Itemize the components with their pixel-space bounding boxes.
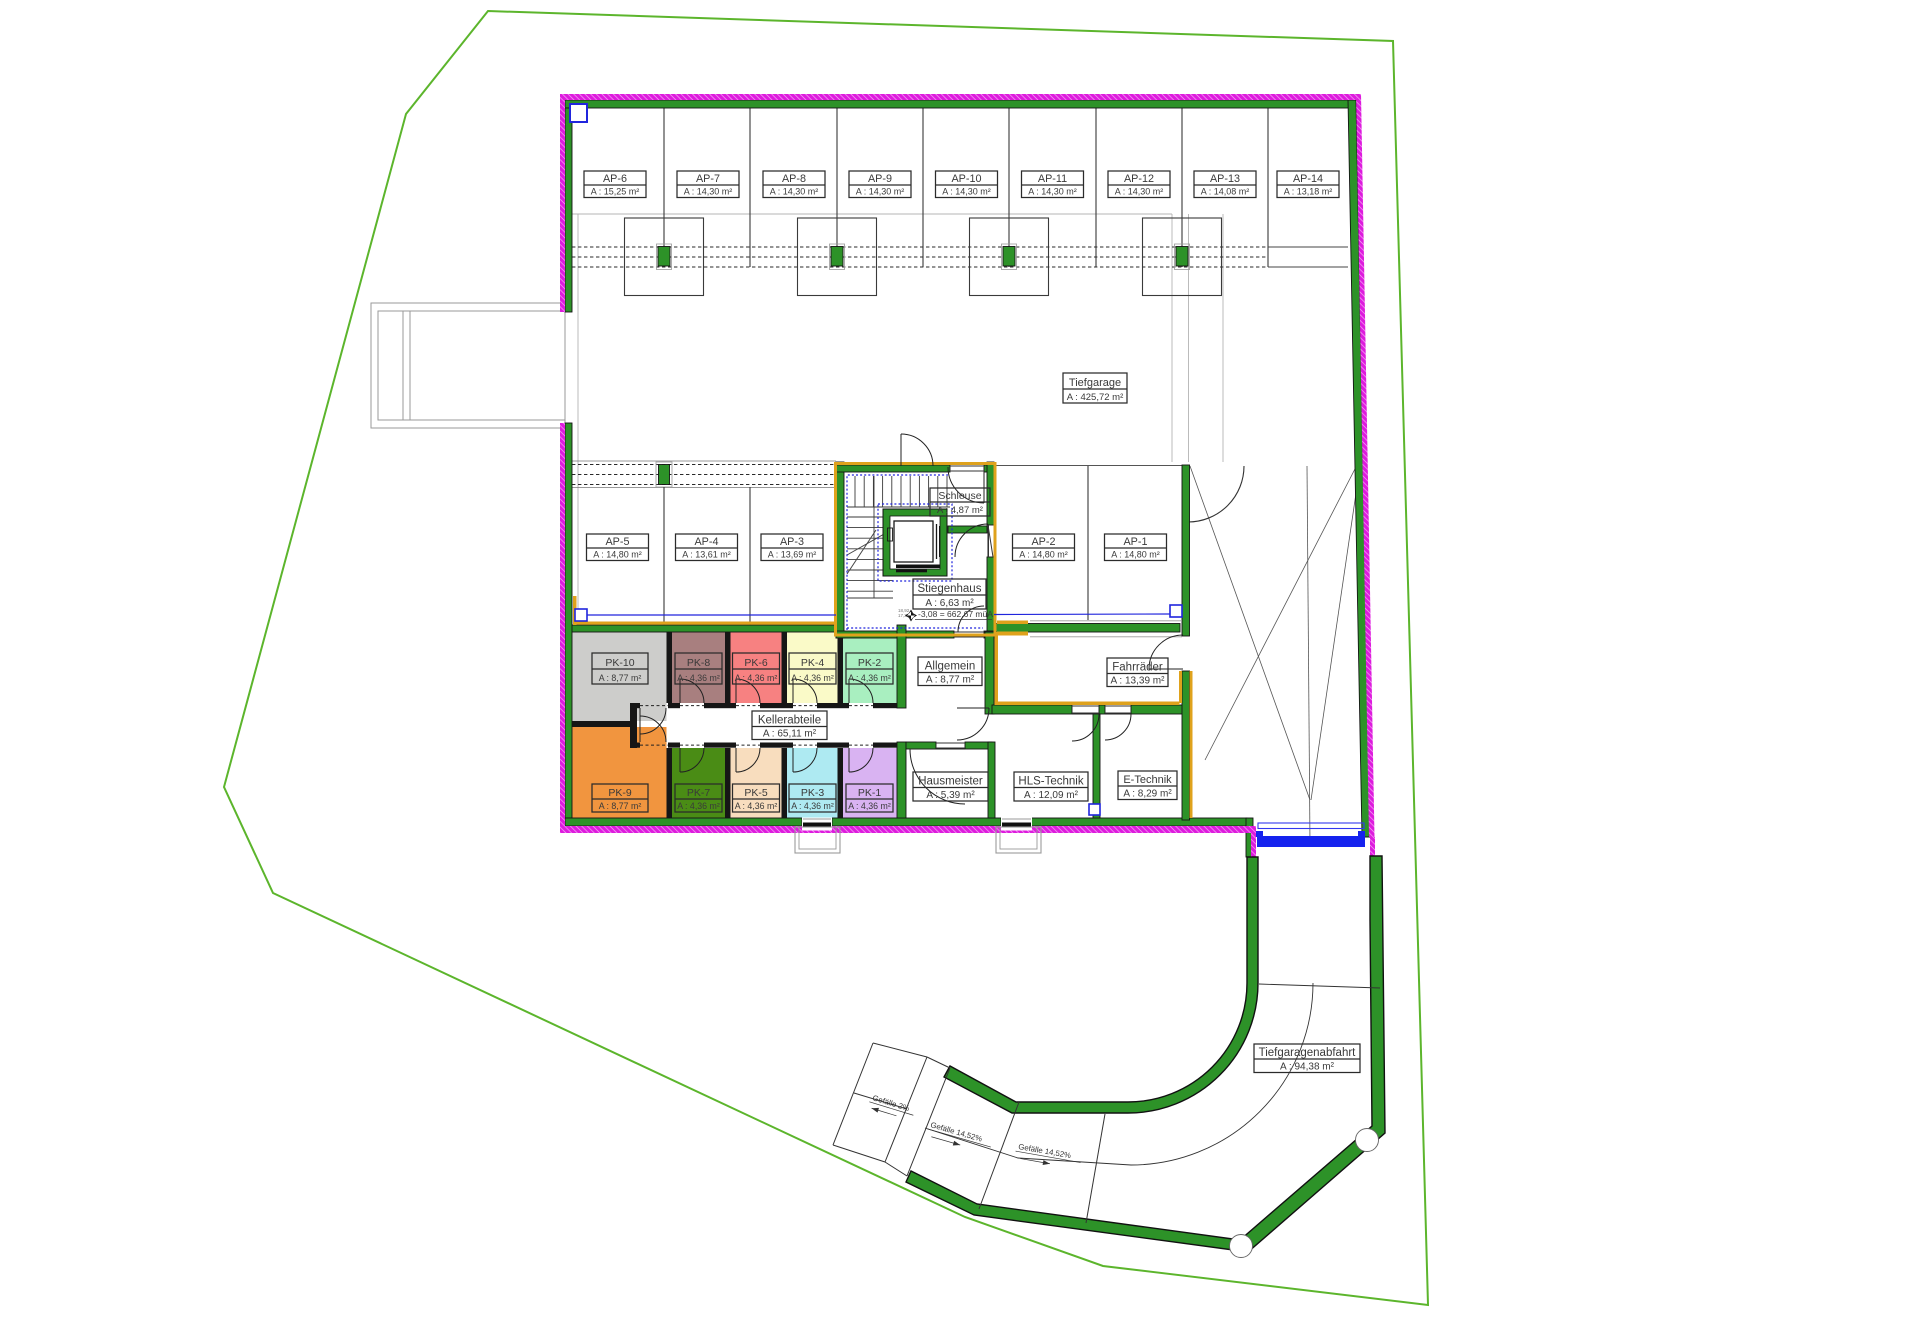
svg-text:A : 13,61 m²: A : 13,61 m² [682, 550, 731, 560]
svg-text:PK-10: PK-10 [605, 657, 634, 669]
svg-text:AP-7: AP-7 [696, 173, 720, 185]
svg-text:AP-12: AP-12 [1124, 173, 1154, 185]
svg-text:PK-1: PK-1 [858, 787, 882, 799]
svg-text:Fahrräder: Fahrräder [1112, 661, 1163, 673]
svg-text:AP-9: AP-9 [868, 173, 892, 185]
svg-text:AP-2: AP-2 [1031, 536, 1055, 548]
svg-text:Tiefgaragenabfahrt: Tiefgaragenabfahrt [1259, 1047, 1357, 1059]
svg-text:Kellerabteile: Kellerabteile [758, 714, 821, 726]
svg-text:Schleuse: Schleuse [938, 490, 981, 502]
svg-text:AP-6: AP-6 [603, 173, 627, 185]
svg-text:A : 14,80 m²: A : 14,80 m² [593, 550, 642, 560]
svg-text:A : 6,63 m²: A : 6,63 m² [925, 598, 974, 609]
svg-text:E-Technik: E-Technik [1123, 774, 1172, 786]
svg-text:Stiegenhaus: Stiegenhaus [918, 583, 982, 595]
svg-text:A : 4,36 m²: A : 4,36 m² [677, 801, 720, 811]
svg-text:A : 425,72 m²: A : 425,72 m² [1067, 392, 1124, 403]
svg-text:A : 4,36 m²: A : 4,36 m² [848, 673, 891, 683]
svg-text:PK-6: PK-6 [744, 657, 768, 669]
svg-text:A : 14,80 m²: A : 14,80 m² [1111, 550, 1160, 560]
svg-text:AP-3: AP-3 [780, 536, 804, 548]
svg-text:PK-3: PK-3 [801, 787, 825, 799]
svg-text:A : 4,36 m²: A : 4,36 m² [848, 801, 891, 811]
svg-text:PK-5: PK-5 [744, 787, 768, 799]
svg-text:Allgemein: Allgemein [925, 660, 976, 672]
svg-text:A : 14,30 m²: A : 14,30 m² [770, 187, 819, 197]
svg-text:A : 14,30 m²: A : 14,30 m² [942, 187, 991, 197]
svg-text:A : 15,25 m²: A : 15,25 m² [591, 187, 640, 197]
svg-text:PK-2: PK-2 [858, 657, 882, 669]
svg-text:-3,08 = 662,67 müA: -3,08 = 662,67 müA [918, 609, 993, 619]
svg-text:A : 13,39 m²: A : 13,39 m² [1111, 676, 1166, 687]
svg-text:HLS-Technik: HLS-Technik [1018, 775, 1083, 787]
svg-text:A : 8,77 m²: A : 8,77 m² [926, 675, 975, 686]
svg-text:A : 14,30 m²: A : 14,30 m² [1028, 187, 1077, 197]
svg-text:PK-4: PK-4 [801, 657, 825, 669]
svg-text:Hausmeister: Hausmeister [918, 775, 983, 787]
svg-text:PK-7: PK-7 [687, 787, 711, 799]
svg-text:A : 4,36 m²: A : 4,36 m² [791, 673, 834, 683]
svg-text:AP-14: AP-14 [1293, 173, 1323, 185]
svg-text:A : 4,36 m²: A : 4,36 m² [791, 801, 834, 811]
svg-text:A : 4,87 m²: A : 4,87 m² [937, 505, 983, 516]
svg-text:AP-1: AP-1 [1123, 536, 1147, 548]
svg-text:A : 14,30 m²: A : 14,30 m² [684, 187, 733, 197]
svg-text:A : 12,09 m²: A : 12,09 m² [1024, 790, 1079, 801]
svg-text:A : 14,30 m²: A : 14,30 m² [1115, 187, 1164, 197]
svg-text:A : 13,18 m²: A : 13,18 m² [1284, 187, 1333, 197]
svg-text:PK-8: PK-8 [687, 657, 711, 669]
svg-text:A : 65,11 m²: A : 65,11 m² [763, 729, 817, 740]
svg-text:A : 14,80 m²: A : 14,80 m² [1019, 550, 1068, 560]
svg-text:A : 14,30 m²: A : 14,30 m² [856, 187, 905, 197]
svg-text:A : 14,08 m²: A : 14,08 m² [1201, 187, 1250, 197]
svg-text:AP-10: AP-10 [951, 173, 981, 185]
svg-text:PK-9: PK-9 [608, 787, 632, 799]
svg-text:A : 13,69 m²: A : 13,69 m² [768, 550, 817, 560]
svg-text:A : 5,39 m²: A : 5,39 m² [926, 790, 975, 801]
svg-text:A : 8,77 m²: A : 8,77 m² [599, 673, 642, 683]
svg-text:A : 4,36 m²: A : 4,36 m² [735, 673, 778, 683]
svg-text:AP-4: AP-4 [694, 536, 718, 548]
svg-text:A : 94,38 m²: A : 94,38 m² [1280, 1062, 1335, 1073]
svg-text:Tiefgarage: Tiefgarage [1069, 377, 1121, 389]
svg-text:A : 8,29 m²: A : 8,29 m² [1123, 789, 1172, 800]
svg-text:A : 4,36 m²: A : 4,36 m² [677, 673, 720, 683]
svg-text:A : 4,36 m²: A : 4,36 m² [735, 801, 778, 811]
svg-text:AP-8: AP-8 [782, 173, 806, 185]
svg-text:A : 8,77 m²: A : 8,77 m² [599, 801, 642, 811]
svg-text:AP-13: AP-13 [1210, 173, 1240, 185]
svg-text:AP-11: AP-11 [1038, 173, 1067, 185]
svg-text:AP-5: AP-5 [605, 536, 629, 548]
